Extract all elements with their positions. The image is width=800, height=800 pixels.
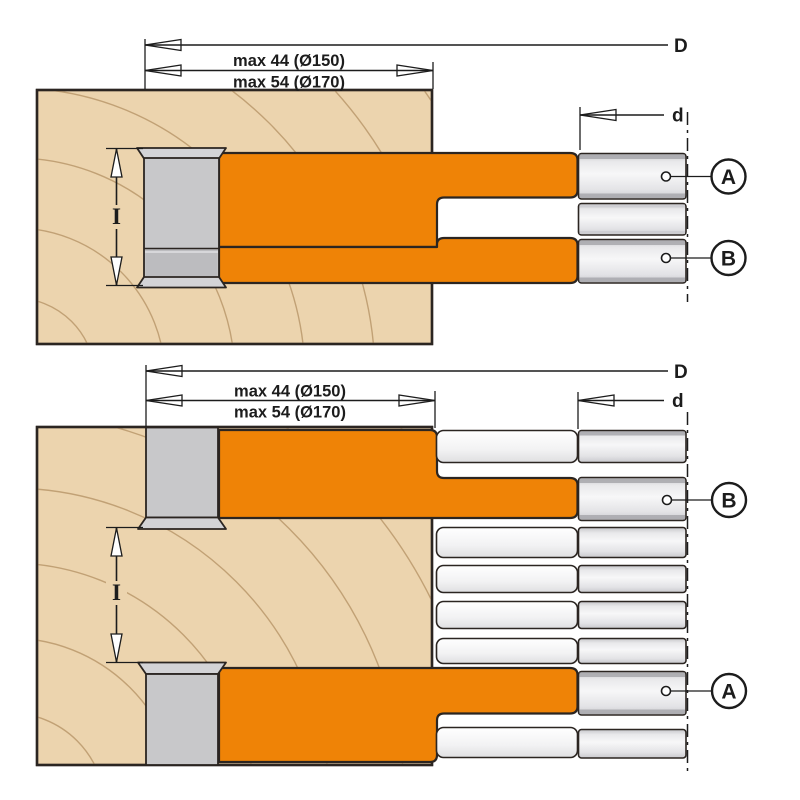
hub-flange-bottom xyxy=(138,518,226,530)
spacer-plate xyxy=(437,728,578,758)
dimension-label-max150: max 44 (Ø150) xyxy=(233,52,345,70)
knife-segment xyxy=(579,730,687,759)
knife-stack-bottom-view xyxy=(579,412,688,772)
hub-lower-bottom-view xyxy=(138,663,226,766)
hub-flange-top xyxy=(138,663,226,675)
knife-segment xyxy=(579,639,687,664)
dimension-D-bottom: D xyxy=(146,362,688,427)
dimension-label-I: I xyxy=(112,204,121,229)
knife-middle-edge-bottom xyxy=(580,231,686,234)
knife-segment xyxy=(579,602,687,629)
hub-body xyxy=(146,428,218,518)
dimension-label-max170: max 54 (Ø170) xyxy=(234,404,346,422)
knife-a-edge-top xyxy=(580,155,686,160)
knife-middle xyxy=(579,204,687,236)
hub-upper-bottom-view xyxy=(138,428,226,530)
knife-a-label: A xyxy=(721,681,736,704)
cutter-body-top-view xyxy=(219,153,578,283)
knife-segment xyxy=(579,566,687,593)
knife-a-edge-top xyxy=(580,673,686,678)
knife-segment xyxy=(579,528,687,558)
hub-top-view xyxy=(137,148,226,288)
dimension-label-d: d xyxy=(672,106,684,127)
knife-b-edge-top xyxy=(580,479,686,484)
dimension-d-bottom: d xyxy=(578,391,684,429)
hub-shade xyxy=(146,249,218,276)
dimension-label-d: d xyxy=(672,391,684,412)
dimension-max-top: max 44 (Ø150) max 54 (Ø170) xyxy=(145,52,433,92)
knife-a-edge-bottom xyxy=(580,194,686,199)
hub-flange-top xyxy=(137,148,226,159)
diagram-canvas: D max 44 (Ø150) max 54 (Ø170) d I xyxy=(0,0,800,800)
dimension-label-max150: max 44 (Ø150) xyxy=(234,383,346,401)
dimension-d-top: d xyxy=(580,106,684,151)
spacer-plate xyxy=(437,566,578,593)
hub-flange-bottom xyxy=(137,277,226,288)
dimension-max-bottom: max 44 (Ø150) max 54 (Ø170) xyxy=(146,383,435,429)
dimension-label-I: I xyxy=(112,580,121,605)
leader-dot xyxy=(662,687,671,696)
spacer-plate xyxy=(437,528,578,558)
knife-b-label: B xyxy=(721,490,736,513)
spacer-plate xyxy=(437,431,578,463)
knife-middle-edge-top xyxy=(580,205,686,208)
leader-dot xyxy=(663,496,672,505)
dimension-label-max170: max 54 (Ø170) xyxy=(233,74,345,92)
hub-body xyxy=(146,674,218,765)
knife-b-edge-bottom xyxy=(580,278,686,283)
spacer-plate xyxy=(437,639,578,664)
knife-a-edge-bottom xyxy=(580,710,686,715)
leader-dot xyxy=(662,254,671,263)
leader-dot xyxy=(662,172,671,181)
dimension-D-top: D xyxy=(145,36,688,89)
knife-edge xyxy=(580,432,686,436)
knife-a-label: A xyxy=(721,166,736,189)
dimension-label-D: D xyxy=(674,36,688,57)
spacer-plate xyxy=(437,602,578,629)
dimension-label-D: D xyxy=(674,362,688,383)
knife-stack-top-view xyxy=(579,112,688,302)
knife-b-edge-bottom xyxy=(580,515,686,520)
cutter-head-technical-diagram: D max 44 (Ø150) max 54 (Ø170) d I xyxy=(0,0,800,800)
knife-b-edge-top xyxy=(580,241,686,246)
cutter-half-a xyxy=(219,153,578,247)
knife-b-label: B xyxy=(721,248,736,271)
